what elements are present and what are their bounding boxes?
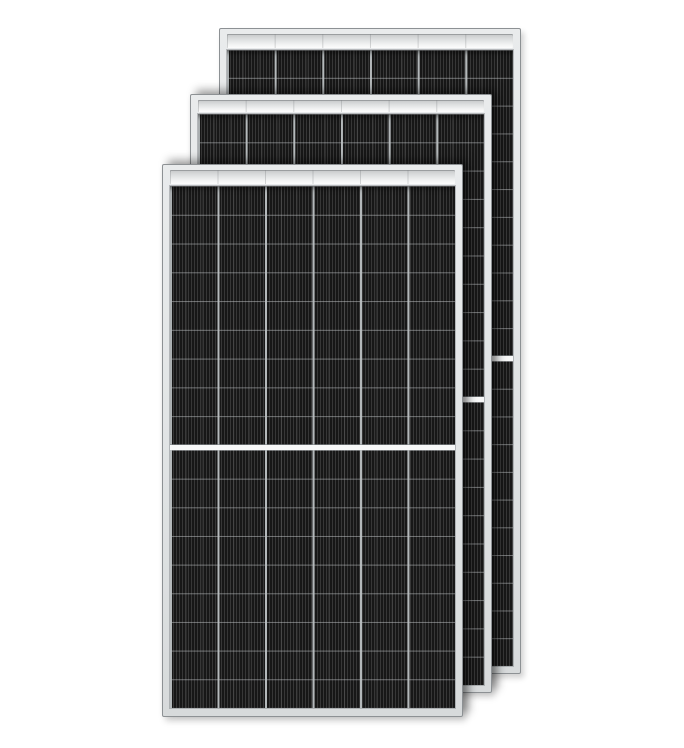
panel-cell-area xyxy=(170,186,455,708)
panel-backsheet-top-bar xyxy=(170,170,455,184)
solar-panel-front xyxy=(162,164,463,717)
panel-backsheet-top-bar xyxy=(198,100,484,112)
cell-grid-lower-half xyxy=(170,450,455,709)
solar-panel-product-photo xyxy=(0,0,684,748)
panel-backsheet-top-bar xyxy=(227,34,513,48)
cell-grid-upper-half xyxy=(170,186,455,445)
